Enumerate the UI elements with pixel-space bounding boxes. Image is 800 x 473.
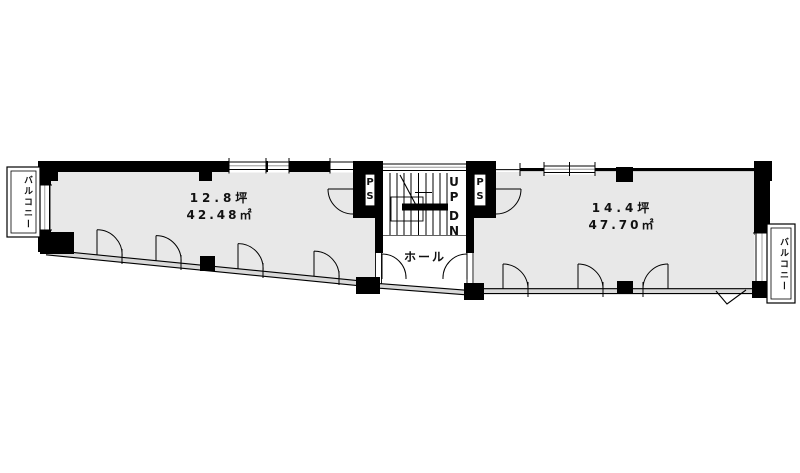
balcony-right-label: バルコニー — [772, 232, 790, 296]
left-room-size-label: 12.8坪 — [148, 189, 293, 206]
right-room-size-label: 14.4坪 — [550, 199, 695, 216]
stair-divider — [402, 204, 448, 211]
pipe-shaft-left-label: PS — [365, 176, 375, 204]
balcony-left-label: バルコニー — [13, 174, 34, 230]
right-room-area-label: 47.70㎡ — [550, 216, 695, 233]
window — [229, 158, 266, 174]
door-opening — [330, 158, 353, 174]
floor-plan-drawing — [0, 0, 800, 473]
hall-label: ホール — [385, 248, 465, 265]
pipe-shaft-right-label: PS — [475, 176, 485, 204]
window — [268, 158, 289, 174]
stairs-down-label: DN — [447, 209, 461, 238]
left-room-area-label: 42.48㎡ — [148, 206, 293, 223]
stairwell-top-window — [383, 162, 466, 173]
stairs-up-label: UP — [447, 175, 461, 204]
window — [544, 162, 595, 176]
floor-plan: 12.8坪 42.48㎡ 14.4坪 47.70㎡ ホール UP DN PS P… — [0, 0, 800, 473]
